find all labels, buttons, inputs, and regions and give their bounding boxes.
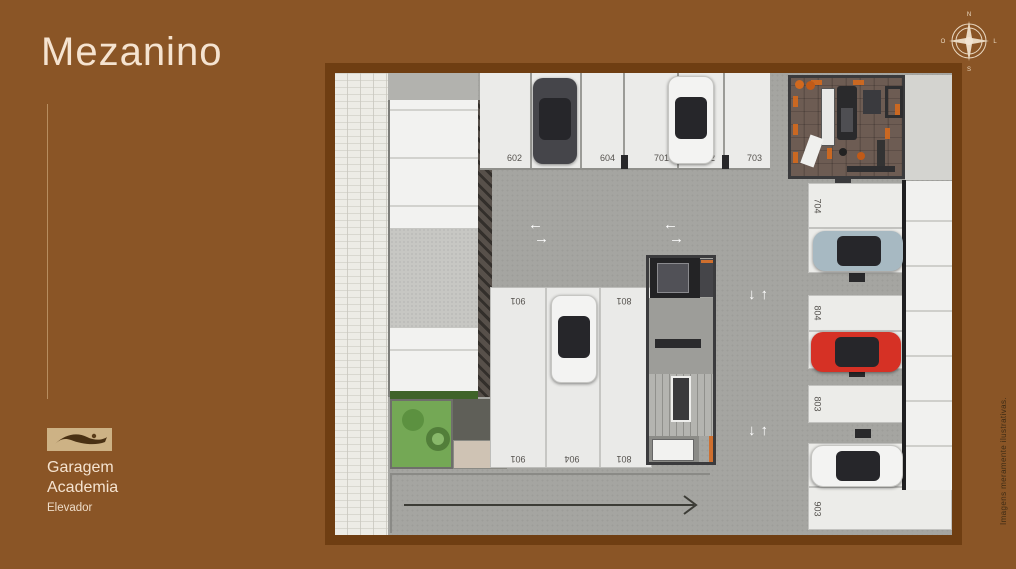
hedge-strip: [390, 391, 478, 399]
parking-spot-label: 801: [597, 454, 651, 464]
spot-divider: [723, 73, 725, 168]
gym-ball-small: [857, 152, 865, 160]
garden-area: [390, 399, 453, 469]
car-white-top-view: [668, 76, 714, 164]
gym-shelf: [821, 88, 835, 146]
upper-right-slab: [905, 75, 952, 180]
gym-treadmill-belt: [841, 108, 853, 132]
wheel-stop: [855, 429, 871, 438]
garage-thumbnail-image: [47, 428, 112, 451]
gym-cable-machine: [863, 90, 881, 114]
legend-title-line1: Garagem: [47, 458, 118, 478]
spot-divider: [623, 73, 625, 168]
legend-title: Garagem Academia: [47, 458, 118, 498]
car-red-top-view: [811, 332, 901, 372]
legend-subtitle: Elevador: [47, 502, 92, 514]
structural-post: [621, 155, 628, 169]
perimeter-wall: [902, 180, 906, 490]
parking-spot-label: 704: [813, 198, 823, 213]
gym-floor-accent: [793, 96, 798, 107]
lane-arrows-horizontal: ← →: [663, 218, 684, 245]
roof-ramp-mid-section: [390, 228, 478, 328]
arrow-right-icon: →: [669, 232, 684, 245]
gym-floor-accent: [853, 80, 864, 85]
brick-wall-strip: [335, 73, 388, 535]
compass-west-label: O: [941, 39, 946, 45]
arrow-down-icon: ↓: [748, 424, 756, 437]
parking-row-top: 602 603 604 701 702 703: [480, 73, 770, 170]
access-ramp: [390, 473, 710, 533]
floorplan-image: 602 603 604 701 702 703: [325, 63, 962, 545]
lane-arrows-vertical: ↓ ↑: [748, 424, 768, 437]
structural-post: [722, 155, 729, 169]
parking-spot-label: 801: [597, 296, 651, 306]
gym-barbell: [847, 166, 895, 172]
compass-north-label: N: [967, 12, 971, 18]
car-silver-blue-top-view: [813, 231, 903, 271]
spot-divider: [530, 73, 532, 168]
garage-thumbnail[interactable]: [47, 428, 112, 451]
parking-spot-label: 604: [587, 153, 615, 163]
arrow-right-icon: →: [534, 232, 549, 245]
arrow-up-icon: ↑: [761, 288, 769, 301]
gym-ball: [795, 80, 804, 89]
spot-extension-band: [906, 181, 952, 490]
parking-spot-label: 903: [813, 501, 823, 516]
car-white-sport-top-view: [811, 445, 903, 487]
parking-spot-label: 803: [813, 396, 823, 411]
spot-divider: [599, 288, 601, 467]
gym-kettlebell: [839, 148, 847, 156]
parking-spot-label: 901: [491, 454, 545, 464]
ramp-direction-arrow: [392, 475, 712, 535]
parking-spot: 903: [808, 487, 952, 530]
core-walls: [646, 255, 716, 465]
title-divider: [47, 104, 48, 399]
gym-ball: [806, 81, 815, 90]
upper-slab: [388, 73, 478, 101]
lane-arrows-vertical: ↓ ↑: [748, 288, 768, 301]
gym-floor-accent: [793, 124, 798, 135]
parking-spot-label: 703: [734, 153, 762, 163]
parking-spot-label: 701: [641, 153, 669, 163]
car-dark-gray-top-view: [533, 78, 577, 164]
arrow-down-icon: ↓: [748, 288, 756, 301]
floorplan-canvas: 602 603 604 701 702 703: [335, 73, 952, 535]
bush: [432, 433, 444, 445]
gym-floor-accent: [793, 152, 798, 163]
bush: [402, 409, 424, 431]
compass-east-label: L: [993, 39, 997, 45]
arrow-up-icon: ↑: [761, 424, 769, 437]
spot-divider: [580, 73, 582, 168]
gym-area: [788, 75, 905, 179]
car-white-top-view: [551, 295, 597, 383]
gym-mat: [800, 135, 823, 168]
parking-spot-label: 602: [494, 153, 522, 163]
spot-divider: [545, 288, 547, 467]
gym-bench: [877, 140, 885, 166]
gym-floor-accent: [885, 128, 890, 139]
gym-squat-rack: [885, 86, 903, 118]
parking-spot-label: 901: [491, 296, 545, 306]
compass-south-label: S: [967, 67, 971, 73]
disclaimer-text: Imagens meramente ilustrativas.: [999, 397, 1008, 525]
gym-floor-accent: [827, 148, 832, 159]
wheel-stop: [849, 273, 865, 282]
lane-arrows-horizontal: ← →: [528, 218, 549, 245]
parking-spot-label: 904: [545, 454, 599, 464]
parking-spot-label: 804: [813, 305, 823, 320]
page-title: Mezanino: [41, 30, 222, 75]
legend-title-line2: Academia: [47, 478, 118, 498]
